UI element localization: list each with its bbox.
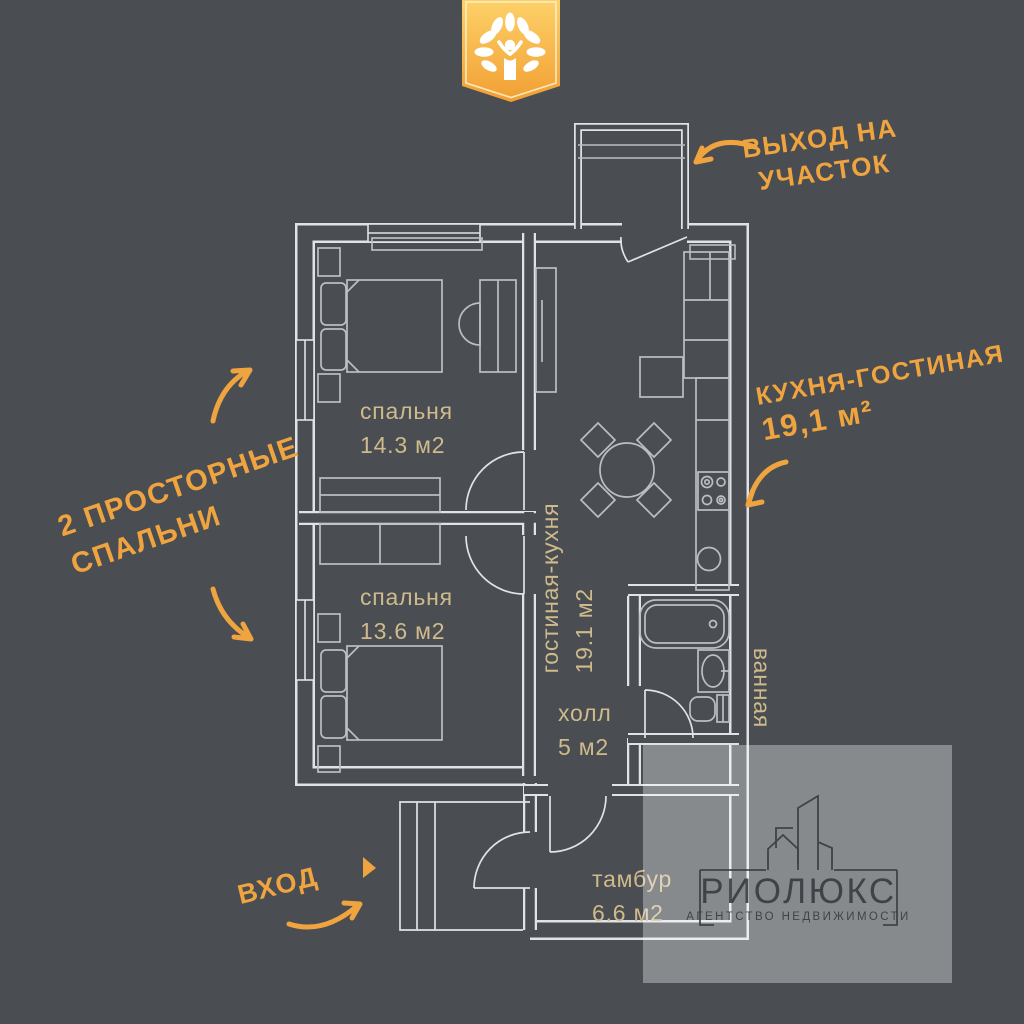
entrance-arrow <box>289 906 357 927</box>
floorplan-poster: спальня 14.3 м2 спальня 13.6 м2 гостиная… <box>0 0 1024 1024</box>
watermark-panel: РИОЛЮКС АГЕНТСТВО НЕДВИЖИМОСТИ <box>643 745 952 983</box>
room-label-bedroom2: спальня 13.6 м2 <box>360 580 453 648</box>
bedroom2-furniture <box>318 524 442 772</box>
bathroom-fixtures <box>640 600 729 722</box>
room-label-living: гостиная-кухня 19.1 м2 <box>533 503 601 674</box>
room-label-bedroom1: спальня 14.3 м2 <box>360 394 453 462</box>
agency-badge <box>462 0 560 102</box>
watermark-logo <box>643 745 952 983</box>
logo-house <box>768 835 798 870</box>
kitchen-arrow <box>748 462 786 505</box>
bedroom2-arrow <box>213 589 248 637</box>
bedroom1-arrow <box>213 371 247 421</box>
entrance-porch <box>400 802 530 930</box>
watermark-subtitle: АГЕНТСТВО НЕДВИЖИМОСТИ <box>680 911 917 923</box>
bedroom1-furniture <box>318 238 516 512</box>
room-label-bathroom: ванная <box>745 648 779 728</box>
logo-tower <box>798 796 818 870</box>
watermark-brand: РИОЛЮКС <box>700 872 897 912</box>
room-label-hall: холл 5 м2 <box>558 696 612 764</box>
entrance-door-marker <box>363 857 376 878</box>
